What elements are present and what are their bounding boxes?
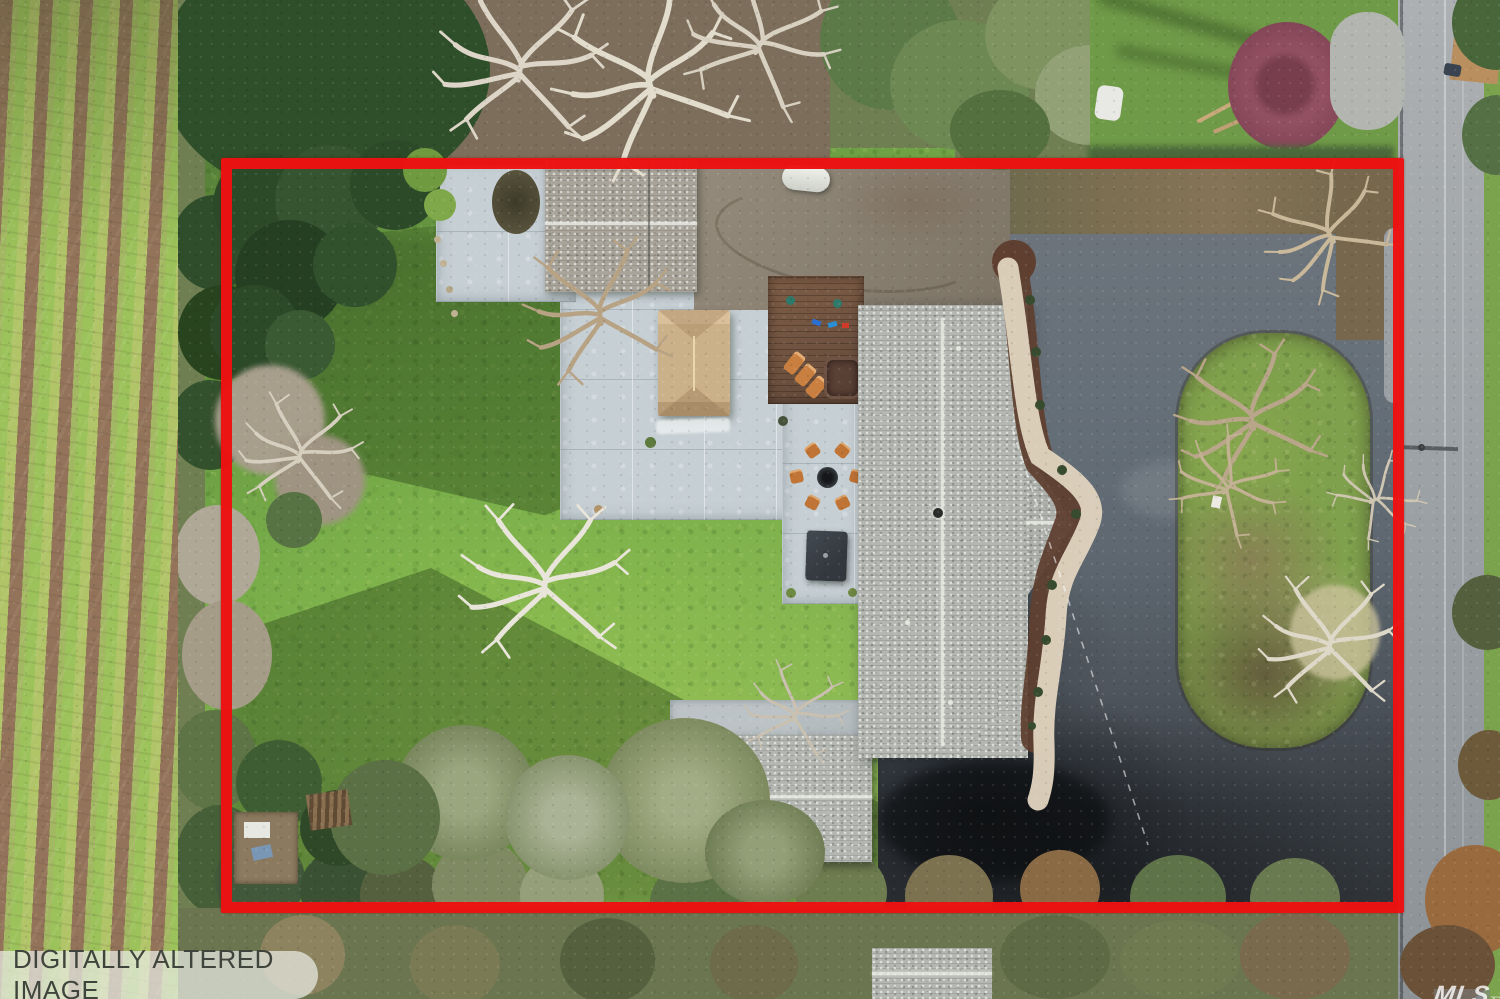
tree-canopy xyxy=(710,925,798,999)
neighbor-roof-ridge xyxy=(872,972,992,975)
aerial-photo-scene: DIGITALLY ALTERED IMAGE BAREIS MLS xyxy=(0,0,1500,999)
road-center-line xyxy=(1444,0,1446,999)
mls-logo-text: MLS xyxy=(1433,984,1492,999)
bare-tree-ground xyxy=(430,0,830,165)
neighbor-driveway xyxy=(1330,12,1405,130)
property-boundary-outline xyxy=(221,158,1404,913)
tree-canopy xyxy=(1120,920,1240,999)
watermark-pill: DIGITALLY ALTERED IMAGE xyxy=(0,951,318,999)
tree-canopy xyxy=(1240,912,1350,999)
mls-logo-line1: BAREIS xyxy=(1490,995,1500,999)
tree-canopy xyxy=(560,918,655,999)
parked-vehicle xyxy=(1094,84,1124,121)
vineyard-shade xyxy=(0,0,178,260)
watermark-text: DIGITALLY ALTERED IMAGE xyxy=(13,944,318,999)
tree-canopy xyxy=(1000,915,1110,999)
utility-pole xyxy=(1418,444,1425,451)
tree-canopy xyxy=(410,925,500,999)
purple-maple-core xyxy=(1255,55,1315,115)
